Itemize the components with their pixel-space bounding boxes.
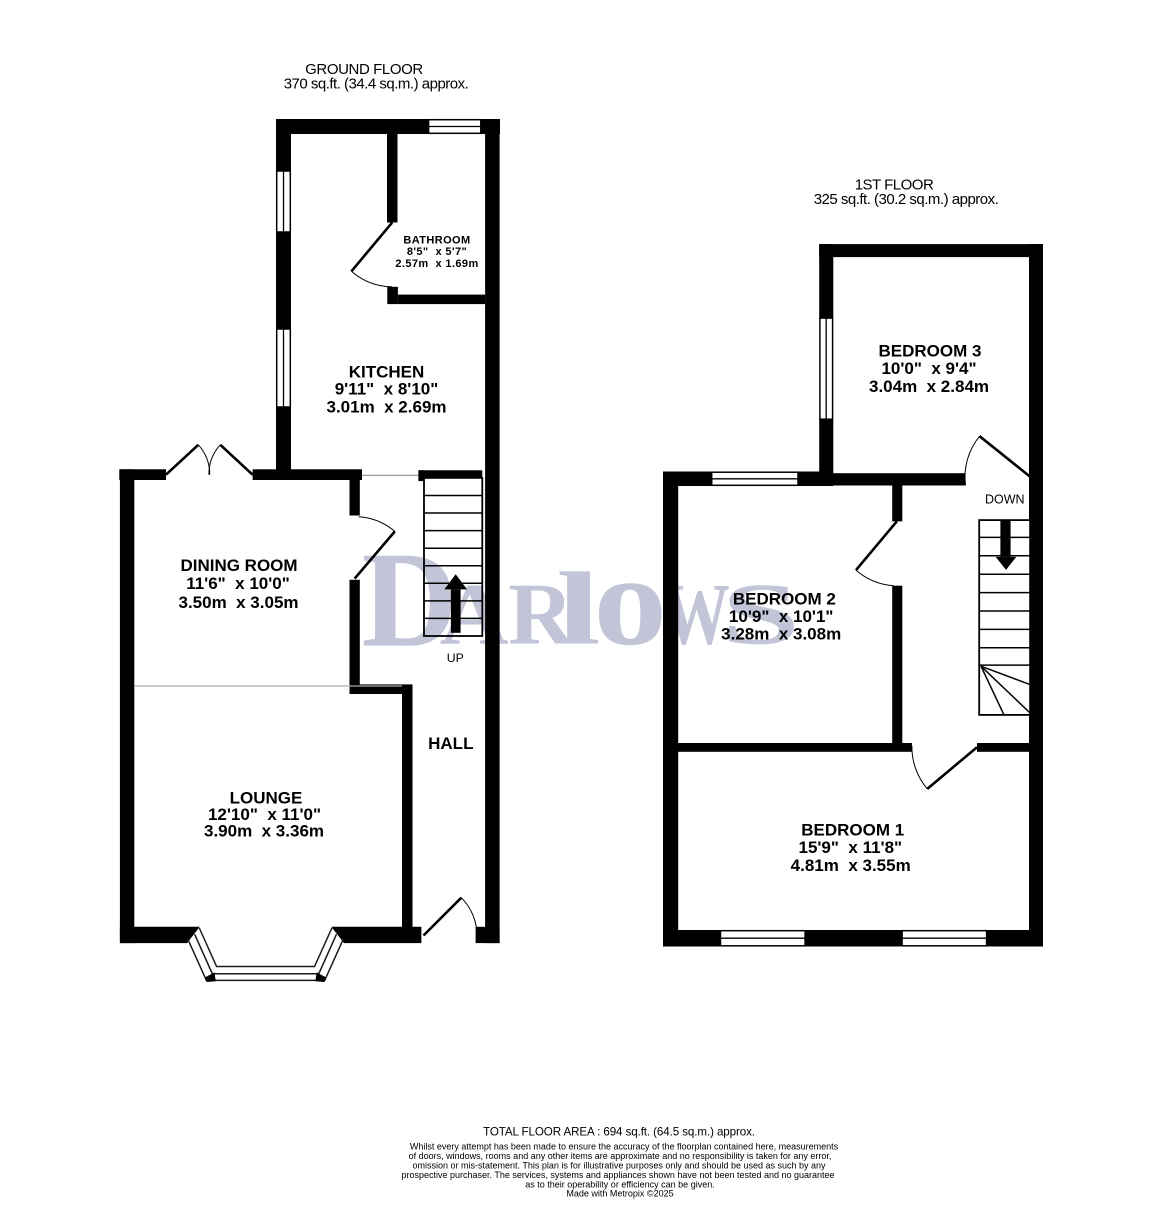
svg-text:3.50m x 3.05m: 3.50m x 3.05m xyxy=(178,593,298,612)
svg-text:Made with Metropix ©2025: Made with Metropix ©2025 xyxy=(566,1189,673,1199)
svg-text:DOWN: DOWN xyxy=(985,492,1025,506)
svg-text:BEDROOM 3: BEDROOM 3 xyxy=(879,341,982,360)
svg-text:15'9" x 11'8": 15'9" x 11'8" xyxy=(798,838,902,857)
svg-text:HALL: HALL xyxy=(428,734,473,753)
svg-text:TOTAL FLOOR AREA : 694 sq.ft.: TOTAL FLOOR AREA : 694 sq.ft. (64.5 sq.m… xyxy=(483,1125,755,1138)
svg-text:BEDROOM 2: BEDROOM 2 xyxy=(733,589,836,608)
svg-text:BEDROOM 1: BEDROOM 1 xyxy=(801,820,904,839)
svg-text:UP: UP xyxy=(447,651,464,665)
svg-text:9'11" x 8'10": 9'11" x 8'10" xyxy=(335,380,439,399)
svg-text:325 sq.ft. (30.2 sq.m.) approx: 325 sq.ft. (30.2 sq.m.) approx. xyxy=(814,191,999,208)
svg-text:8'5" x 5'7": 8'5" x 5'7" xyxy=(407,246,467,258)
svg-text:3.04m x 2.84m: 3.04m x 2.84m xyxy=(869,377,989,396)
svg-text:of doors, windows, rooms and a: of doors, windows, rooms and any other i… xyxy=(409,1151,832,1161)
svg-text:4.81m x 3.55m: 4.81m x 3.55m xyxy=(791,856,911,875)
svg-text:DINING ROOM: DINING ROOM xyxy=(180,556,297,575)
svg-text:BATHROOM: BATHROOM xyxy=(403,235,470,247)
svg-text:3.01m x 2.69m: 3.01m x 2.69m xyxy=(326,398,446,417)
svg-text:11'6" x 10'0": 11'6" x 10'0" xyxy=(186,574,290,593)
svg-text:10'9" x 10'1": 10'9" x 10'1" xyxy=(729,607,834,626)
svg-text:370 sq.ft. (34.4 sq.m.) approx: 370 sq.ft. (34.4 sq.m.) approx. xyxy=(284,76,469,93)
svg-text:o: o xyxy=(593,529,667,672)
svg-text:3.28m x 3.08m: 3.28m x 3.08m xyxy=(721,625,841,644)
svg-text:10'0" x 9'4": 10'0" x 9'4" xyxy=(881,359,976,378)
svg-text:3.90m x 3.36m: 3.90m x 3.36m xyxy=(204,822,324,841)
svg-text:2.57m x 1.69m: 2.57m x 1.69m xyxy=(395,258,478,270)
